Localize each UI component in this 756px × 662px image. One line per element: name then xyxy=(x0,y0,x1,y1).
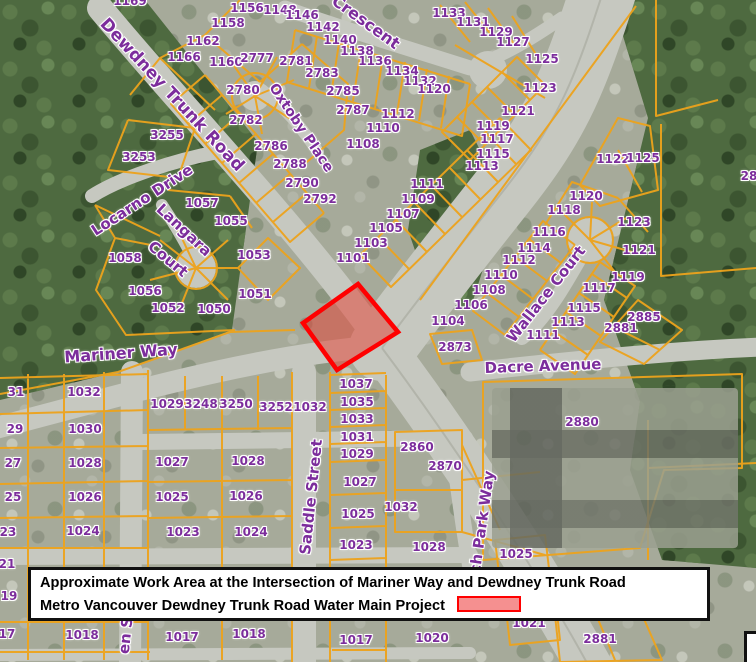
parcel-number-label: 1112 xyxy=(381,107,414,121)
parcel-number-label: 27 xyxy=(5,456,22,470)
parcel-number-label: 1023 xyxy=(166,525,199,539)
parcel-number-label: 17 xyxy=(0,627,15,641)
parcel-number-label: 1027 xyxy=(155,455,188,469)
parcel-number-label: 1028 xyxy=(231,454,264,468)
parcel-number-label: 1156 xyxy=(230,1,263,15)
parcel-number-label: 1112 xyxy=(502,253,535,267)
caption-box: Approximate Work Area at the Intersectio… xyxy=(28,567,710,621)
map-image: 1169115611581162116611602777278127832785… xyxy=(0,0,756,662)
parcel-number-label: 1101 xyxy=(336,251,369,265)
parcel-number-label: 1120 xyxy=(417,82,450,96)
parcel-number-label: 1121 xyxy=(622,243,655,257)
parcel-number-label: 3255 xyxy=(150,128,183,142)
parcel-number-label: 1028 xyxy=(412,540,445,554)
parcel-number-label: 1030 xyxy=(68,422,101,436)
parcel-number-label: 1118 xyxy=(547,203,580,217)
parcel-number-label: 1025 xyxy=(155,490,188,504)
caption-line-1: Approximate Work Area at the Intersectio… xyxy=(40,572,698,595)
parcel-number-label: 1037 xyxy=(339,377,372,391)
work-area-polygon xyxy=(303,284,398,370)
parcel-number-label: 29 xyxy=(7,422,24,436)
parcel-number-label: 1107 xyxy=(386,207,419,221)
parcel-number-label: 2788 xyxy=(273,157,306,171)
parcel-number-label: 1105 xyxy=(369,221,402,235)
parcel-number-label: 19 xyxy=(1,589,18,603)
parcel-number-label: 1050 xyxy=(197,302,230,316)
parcel-number-label: 21 xyxy=(0,557,15,571)
parcel-number-label: 1109 xyxy=(401,192,434,206)
parcel-number-label: 1169 xyxy=(113,0,146,8)
parcel-number-label: 1103 xyxy=(354,236,387,250)
parcel-number-label: 1111 xyxy=(526,328,559,342)
parcel-number-label: 3250 xyxy=(219,397,252,411)
parcel-number-label: 2880 xyxy=(565,415,598,429)
parcel-number-label: 1119 xyxy=(611,270,644,284)
caption-line-2: Metro Vancouver Dewdney Trunk Road Water… xyxy=(40,595,698,618)
parcel-number-label: 1025 xyxy=(341,507,374,521)
parcel-number-label: 1018 xyxy=(65,628,98,642)
parcel-number-label: 1127 xyxy=(496,35,529,49)
parcel-number-label: 2790 xyxy=(285,176,318,190)
parcel-number-label: 1032 xyxy=(384,500,417,514)
parcel-number-label: 2777 xyxy=(240,51,273,65)
parcel-number-label: 1055 xyxy=(214,214,247,228)
parcel-number-label: 1029 xyxy=(150,397,183,411)
parcel-number-label: 1162 xyxy=(186,34,219,48)
parcel-number-label: 1125 xyxy=(626,151,659,165)
parcel-number-label: 1052 xyxy=(151,301,184,315)
work-area-legend-swatch xyxy=(457,596,521,612)
parcel-number-label: 1025 xyxy=(499,547,532,561)
parcel-number-label: 1024 xyxy=(234,525,267,539)
parcel-number-label: 1032 xyxy=(293,400,326,414)
parcel-number-label: 1020 xyxy=(415,631,448,645)
parcel-number-label: 1026 xyxy=(68,490,101,504)
parcel-number-label: 1110 xyxy=(484,268,517,282)
parcel-number-label: 2792 xyxy=(303,192,336,206)
parcel-number-label: 2787 xyxy=(336,103,369,117)
parcel-number-label: 1142 xyxy=(306,20,339,34)
parcel-number-label: 28 xyxy=(741,169,756,183)
parcel-number-label: 1123 xyxy=(617,215,650,229)
parcel-number-label: 1053 xyxy=(237,248,270,262)
parcel-number-label: 1108 xyxy=(346,137,379,151)
parcel-number-label: 31 xyxy=(8,385,25,399)
work-area-layer xyxy=(0,0,756,662)
parcel-number-label: 1110 xyxy=(366,121,399,135)
parcel-number-label: 2860 xyxy=(400,440,433,454)
parcel-number-label: 1035 xyxy=(340,395,373,409)
parcel-number-label: 2881 xyxy=(604,321,637,335)
parcel-number-label: 1113 xyxy=(551,315,584,329)
parcel-number-label: 1018 xyxy=(232,627,265,641)
parcel-number-label: 2870 xyxy=(428,459,461,473)
parcel-number-label: 1123 xyxy=(523,81,556,95)
parcel-number-label: 1166 xyxy=(167,50,200,64)
clipped-legend-box-edge xyxy=(744,631,756,662)
parcel-number-label: 1121 xyxy=(501,104,534,118)
parcel-number-label: 1026 xyxy=(229,489,262,503)
parcel-number-label: 1033 xyxy=(340,412,373,426)
parcel-number-label: 3248 xyxy=(184,397,217,411)
parcel-number-label: 1017 xyxy=(339,633,372,647)
parcel-number-label: 1024 xyxy=(66,524,99,538)
parcel-number-label: 1115 xyxy=(567,301,600,315)
parcel-number-label: 1116 xyxy=(532,225,565,239)
parcel-number-label: 1158 xyxy=(211,16,244,30)
parcel-number-label: 1057 xyxy=(185,196,218,210)
parcel-number-label: 1108 xyxy=(472,283,505,297)
parcel-number-label: 1125 xyxy=(525,52,558,66)
parcel-number-label: 1117 xyxy=(582,281,615,295)
parcel-number-label: 1160 xyxy=(209,55,242,69)
parcel-number-label: 1056 xyxy=(128,284,161,298)
parcel-number-label: 2881 xyxy=(583,632,616,646)
parcel-number-label: 1051 xyxy=(238,287,271,301)
parcel-number-label: 1028 xyxy=(68,456,101,470)
parcel-number-label: 1104 xyxy=(431,314,464,328)
parcel-number-label: 1120 xyxy=(569,189,602,203)
parcel-number-label: 1111 xyxy=(410,177,443,191)
parcel-number-label: 1029 xyxy=(340,447,373,461)
parcel-number-label: 2786 xyxy=(254,139,287,153)
parcel-number-label: 1117 xyxy=(480,132,513,146)
parcel-number-label: 2785 xyxy=(326,84,359,98)
parcel-number-label: 25 xyxy=(5,490,22,504)
parcel-number-label: 1031 xyxy=(340,430,373,444)
parcel-number-label: 1058 xyxy=(108,251,141,265)
parcel-number-label: 1032 xyxy=(67,385,100,399)
parcel-number-label: 1027 xyxy=(343,475,376,489)
parcel-number-label: 23 xyxy=(0,525,16,539)
parcel-number-label: 1113 xyxy=(465,159,498,173)
parcel-number-label: 1017 xyxy=(165,630,198,644)
parcel-number-label: 2782 xyxy=(229,113,262,127)
parcel-number-label: 1119 xyxy=(476,119,509,133)
parcel-number-label: 2873 xyxy=(438,340,471,354)
parcel-number-label: 2783 xyxy=(305,66,338,80)
parcel-number-label: 1106 xyxy=(454,298,487,312)
parcel-number-label: 3252 xyxy=(259,400,292,414)
parcel-number-label: 2780 xyxy=(226,83,259,97)
parcel-number-label: 1023 xyxy=(339,538,372,552)
parcel-number-label: 1122 xyxy=(596,152,629,166)
parcel-number-label: 3253 xyxy=(122,150,155,164)
